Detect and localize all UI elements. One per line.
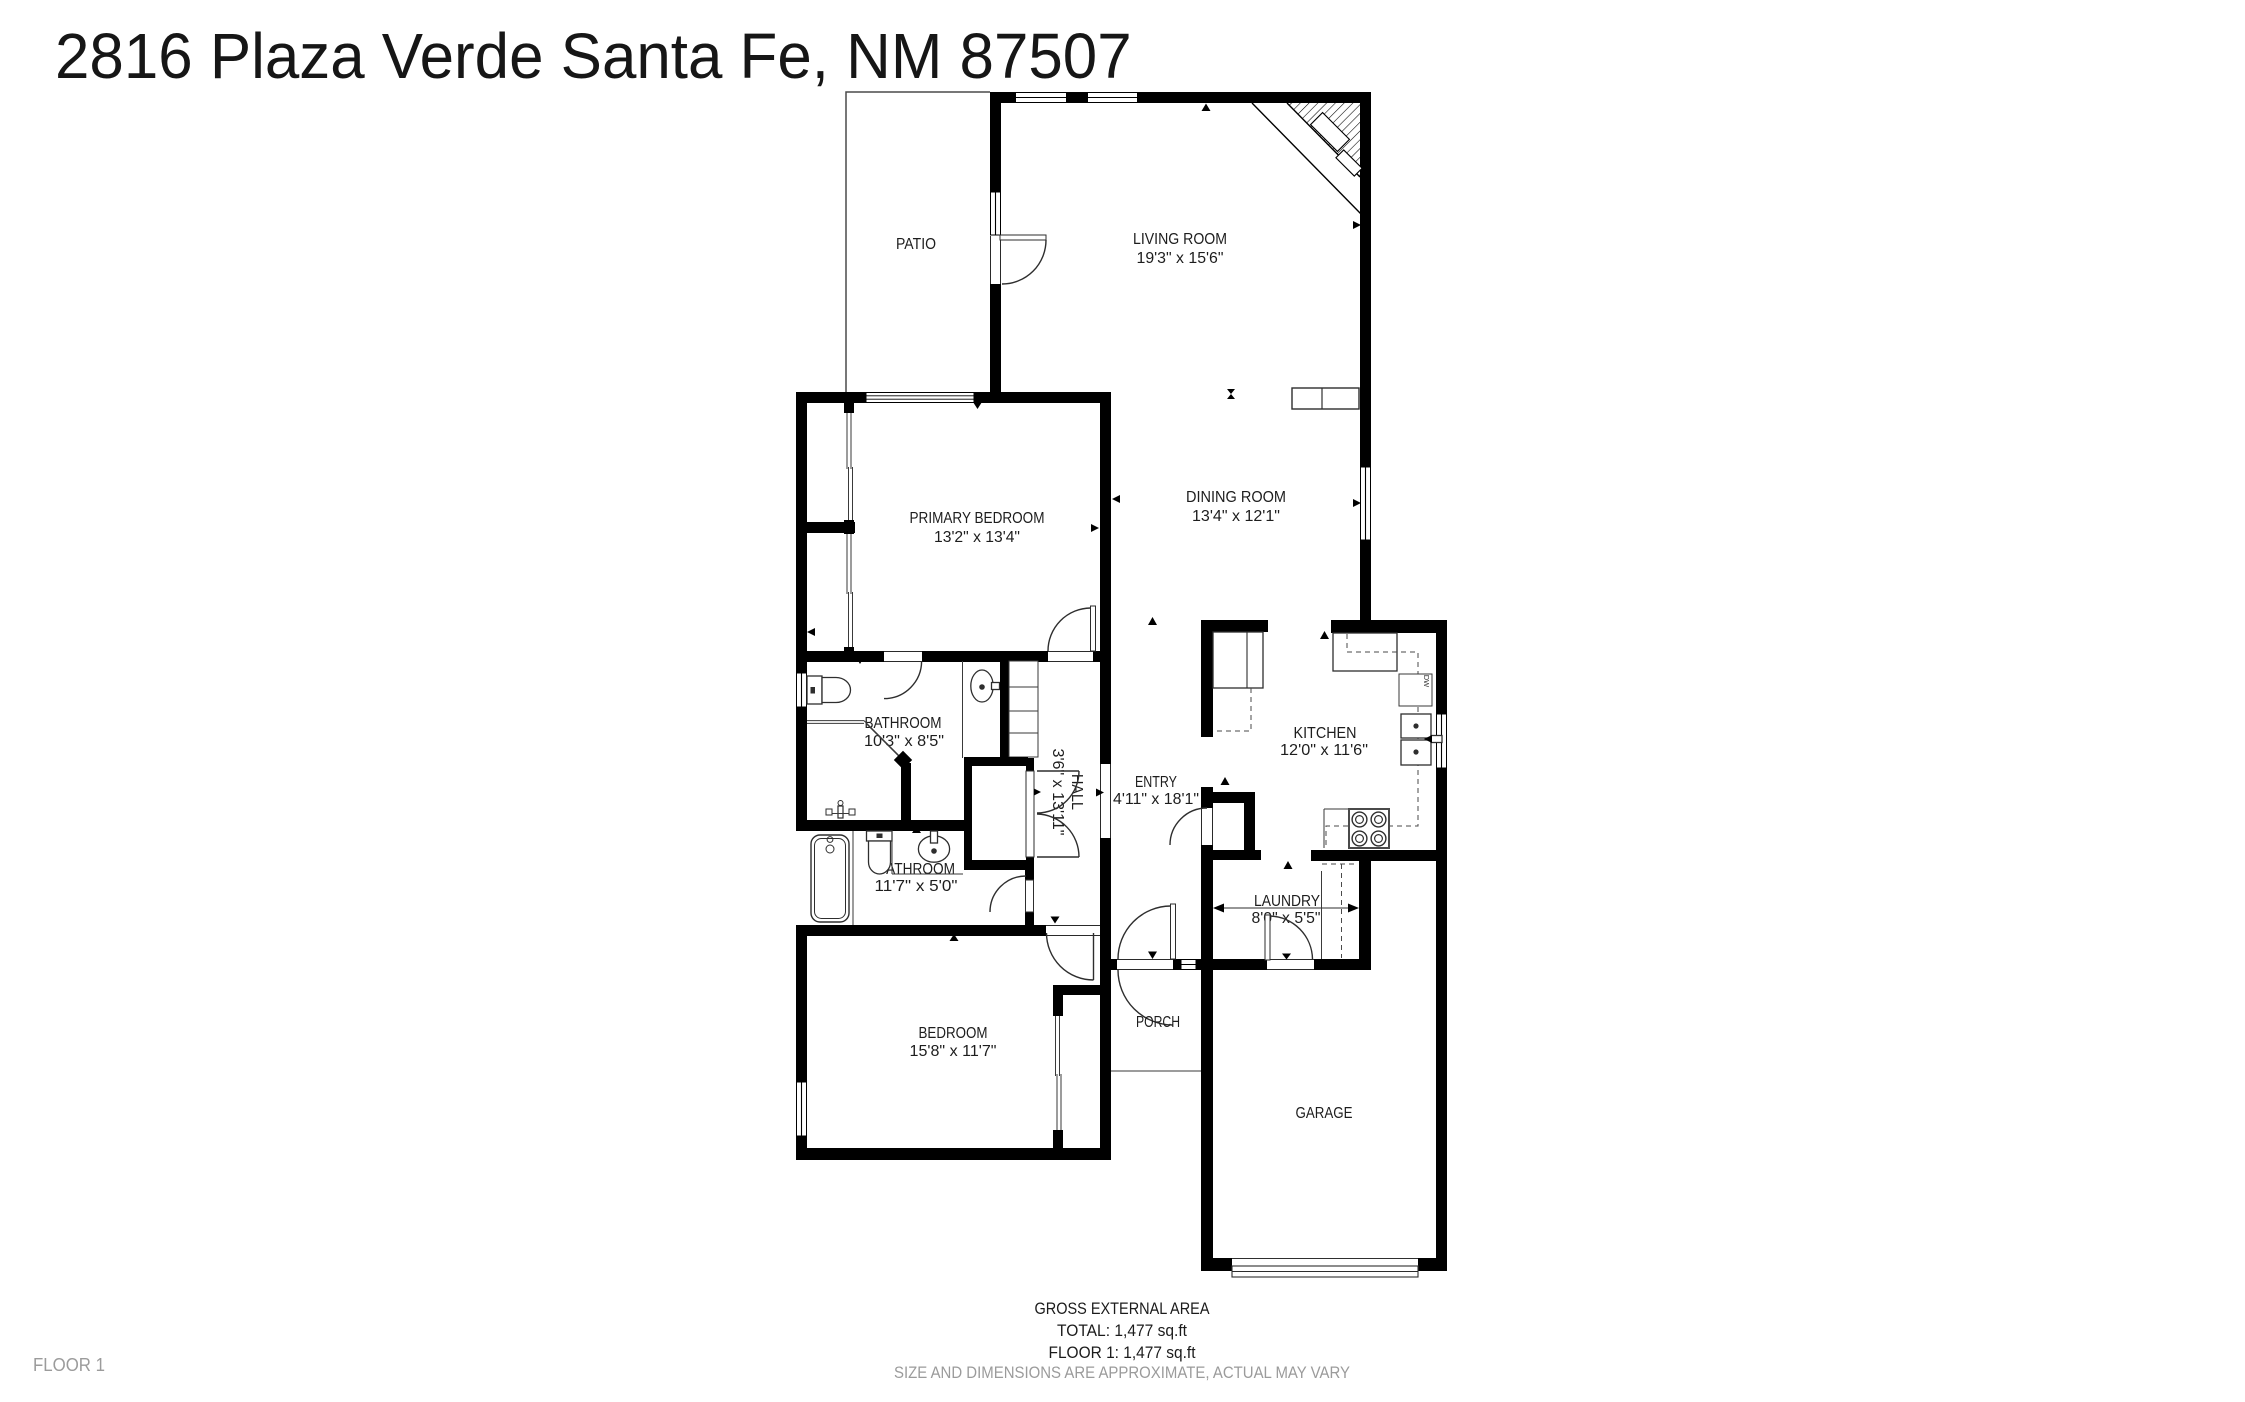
svg-text:TOTAL: 1,477 sq.ft: TOTAL: 1,477 sq.ft — [1057, 1321, 1187, 1340]
svg-text:ENTRY: ENTRY — [1135, 774, 1177, 791]
svg-text:19'3" x 15'6": 19'3" x 15'6" — [1137, 250, 1224, 267]
svg-text:3'6" x 13'11": 3'6" x 13'11" — [1049, 749, 1066, 836]
svg-text:PRIMARY BEDROOM: PRIMARY BEDROOM — [910, 510, 1045, 527]
svg-text:10'3" x 8'5": 10'3" x 8'5" — [864, 733, 944, 750]
svg-text:2816 Plaza Verde Santa Fe, NM: 2816 Plaza Verde Santa Fe, NM 87507 — [55, 21, 1132, 92]
svg-text:LIVING ROOM: LIVING ROOM — [1133, 231, 1227, 248]
svg-text:KITCHEN: KITCHEN — [1294, 725, 1357, 742]
svg-text:15'8" x 11'7": 15'8" x 11'7" — [910, 1043, 997, 1060]
svg-text:LAUNDRY: LAUNDRY — [1254, 893, 1320, 910]
svg-text:HALL: HALL — [1068, 774, 1085, 810]
svg-text:11'7" x 5'0": 11'7" x 5'0" — [875, 878, 958, 895]
svg-text:8'0" x 5'5": 8'0" x 5'5" — [1252, 910, 1321, 927]
svg-text:BATHROOM: BATHROOM — [865, 715, 942, 732]
svg-text:PATIO: PATIO — [896, 236, 936, 253]
svg-text:GARAGE: GARAGE — [1296, 1105, 1353, 1122]
svg-text:GROSS EXTERNAL AREA: GROSS EXTERNAL AREA — [1035, 1299, 1211, 1318]
svg-text:FLOOR 1: 1,477 sq.ft: FLOOR 1: 1,477 sq.ft — [1049, 1343, 1196, 1362]
svg-text:PORCH: PORCH — [1136, 1014, 1180, 1031]
svg-text:12'0" x 11'6": 12'0" x 11'6" — [1280, 742, 1368, 759]
svg-text:4'11" x 18'1": 4'11" x 18'1" — [1113, 791, 1199, 808]
svg-text:FLOOR 1: FLOOR 1 — [33, 1355, 105, 1375]
svg-text:DINING ROOM: DINING ROOM — [1186, 489, 1286, 506]
svg-text:BEDROOM: BEDROOM — [919, 1025, 988, 1042]
svg-text:13'4" x 12'1": 13'4" x 12'1" — [1192, 508, 1280, 525]
svg-text:SIZE AND DIMENSIONS ARE APPROX: SIZE AND DIMENSIONS ARE APPROXIMATE, ACT… — [894, 1363, 1350, 1382]
svg-text:DW: DW — [1422, 675, 1431, 688]
svg-text:13'2" x 13'4": 13'2" x 13'4" — [934, 529, 1020, 546]
